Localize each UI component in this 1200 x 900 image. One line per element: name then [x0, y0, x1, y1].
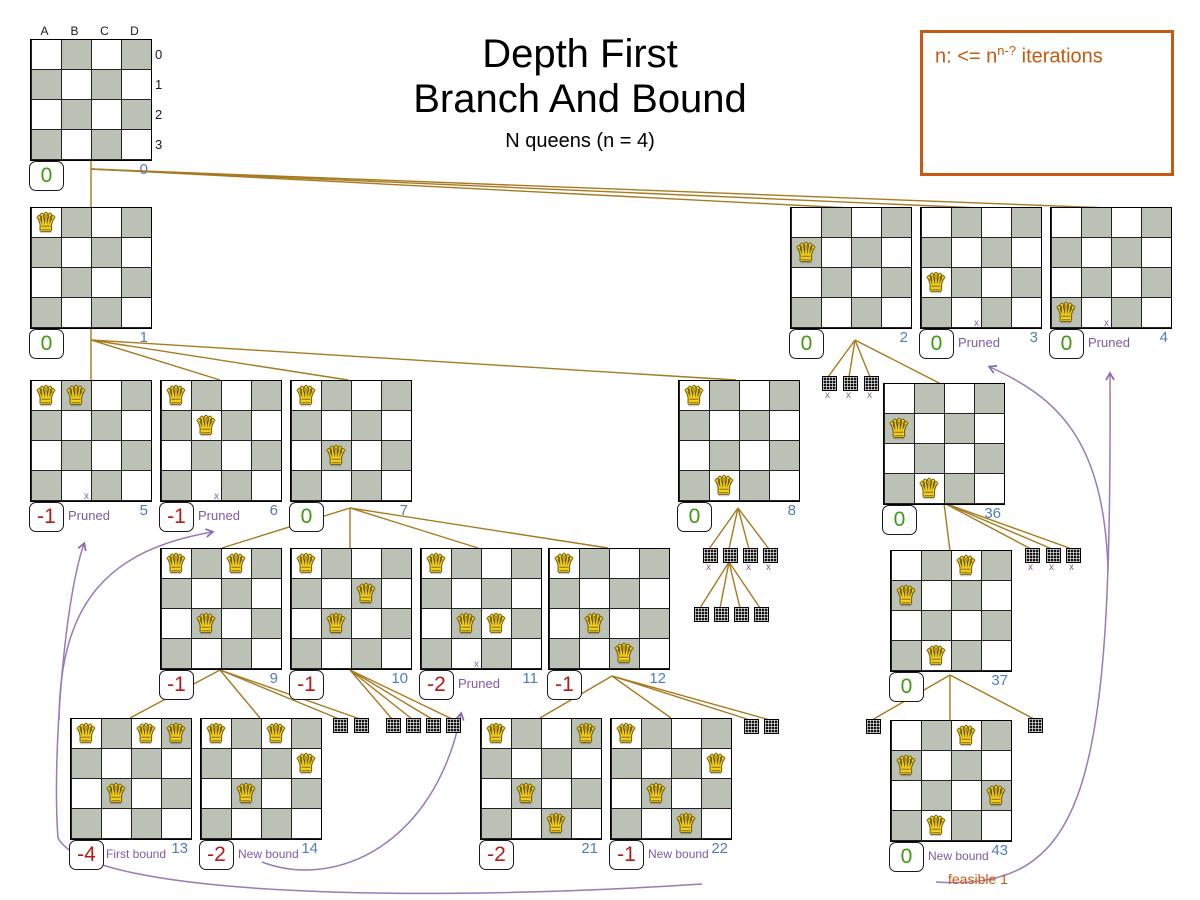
board-cell: [101, 809, 131, 839]
board-cell: [891, 551, 921, 581]
board-cell: [381, 411, 411, 441]
node-number-0: 0: [118, 161, 148, 178]
tree-edge: [612, 676, 750, 720]
queen-icon: ♛: [1051, 298, 1081, 328]
node-board-8: ♛♛: [678, 380, 800, 502]
board-cell: [291, 719, 321, 749]
board-cell: [91, 130, 121, 160]
board-cell: [101, 749, 131, 779]
board-cell: [121, 208, 151, 238]
mini-board: [723, 548, 738, 563]
queen-icon: ♛: [31, 381, 61, 411]
board-cell: [31, 471, 61, 501]
board-cell: [769, 441, 799, 471]
board-cell: [91, 268, 121, 298]
mini-board: [1046, 548, 1061, 563]
queen-icon: ♛: [191, 411, 221, 441]
board-cell: [221, 441, 251, 471]
board-cell: [191, 549, 221, 579]
node-board-7: ♛♛: [290, 380, 412, 502]
page-title-line2: Branch And Bound: [330, 77, 830, 122]
mini-board: [864, 376, 879, 391]
score-badge-22: -1: [609, 840, 644, 870]
mini-board: [734, 607, 749, 622]
row-label-1: 1: [155, 77, 162, 92]
queen-icon: ♛: [351, 579, 381, 609]
queen-icon: ♛: [261, 719, 291, 749]
board-cell: [1051, 238, 1081, 268]
queen-icon: ♛: [914, 474, 944, 504]
board-cell: [549, 579, 579, 609]
board-cell: [951, 811, 981, 841]
board-cell: [884, 384, 914, 414]
board-cell: [921, 581, 951, 611]
board-cell: [481, 639, 511, 669]
queen-icon: ♛: [709, 471, 739, 501]
score-badge-10: -1: [289, 670, 324, 700]
tree-edge: [729, 562, 760, 608]
board-cell: [381, 579, 411, 609]
board-cell: [121, 238, 151, 268]
board-cell: [709, 411, 739, 441]
board-cell: [451, 579, 481, 609]
score-badge-7: 0: [289, 502, 324, 532]
queen-icon: ♛: [951, 721, 981, 751]
board-cell: [251, 549, 281, 579]
pruned-xmark-5: x: [84, 492, 89, 502]
board-cell: [944, 384, 974, 414]
queen-icon: ♛: [191, 609, 221, 639]
board-cell: [421, 579, 451, 609]
queen-icon: ♛: [609, 639, 639, 669]
board-cell: [31, 298, 61, 328]
board-cell: [914, 384, 944, 414]
mini-board: [763, 548, 778, 563]
board-cell: [1051, 208, 1081, 238]
board-cell: [641, 749, 671, 779]
board-cell: [951, 268, 981, 298]
board-cell: [481, 779, 511, 809]
board-cell: [579, 549, 609, 579]
board-cell: [579, 639, 609, 669]
board-cell: [161, 809, 191, 839]
board-cell: [351, 639, 381, 669]
score-badge-21: -2: [479, 840, 514, 870]
board-cell: [769, 471, 799, 501]
board-cell: [981, 811, 1011, 841]
mini-board: [1028, 718, 1043, 733]
board-cell: [884, 444, 914, 474]
board-cell: [981, 208, 1011, 238]
queen-icon: ♛: [891, 581, 921, 611]
board-cell: [891, 721, 921, 751]
board-cell: [91, 298, 121, 328]
node-number-12: 12: [636, 670, 666, 687]
board-cell: [61, 268, 91, 298]
board-cell: [351, 381, 381, 411]
score-badge-43: 0: [889, 842, 924, 872]
score-badge-37: 0: [889, 672, 924, 702]
note-superscript: n-?: [997, 43, 1016, 58]
node-number-6: 6: [248, 502, 278, 519]
queen-icon: ♛: [201, 719, 231, 749]
score-badge-36: 0: [882, 505, 917, 535]
tree-edge: [91, 169, 850, 208]
board-cell: [71, 779, 101, 809]
board-cell: [231, 749, 261, 779]
queen-icon: ♛: [221, 549, 251, 579]
board-cell: [291, 809, 321, 839]
board-cell: [221, 411, 251, 441]
board-cell: [1011, 208, 1041, 238]
pruned-label-4: Pruned: [1088, 335, 1130, 350]
board-cell: [981, 298, 1011, 328]
board-cell: [91, 40, 121, 70]
board-cell: [951, 238, 981, 268]
board-cell: [701, 809, 731, 839]
board-cell: [951, 208, 981, 238]
board-cell: [121, 268, 151, 298]
board-cell: [951, 781, 981, 811]
board-cell: [351, 411, 381, 441]
board-cell: [251, 609, 281, 639]
mini-board-xmark: x: [867, 391, 872, 401]
dfbb-diagram: Depth First Branch And Bound N queens (n…: [0, 0, 1200, 900]
board-cell: [121, 40, 151, 70]
queen-icon: ♛: [421, 549, 451, 579]
score-badge-2: 0: [789, 329, 824, 359]
board-cell: [191, 441, 221, 471]
board-cell: [321, 411, 351, 441]
board-cell: [381, 639, 411, 669]
board-cell: [251, 441, 281, 471]
board-cell: [221, 471, 251, 501]
queen-icon: ♛: [71, 719, 101, 749]
board-cell: [921, 751, 951, 781]
board-cell: [701, 719, 731, 749]
tree-edge: [944, 503, 1072, 549]
board-cell: [121, 130, 151, 160]
board-cell: [541, 749, 571, 779]
mini-board-xmark: x: [825, 391, 830, 401]
board-cell: [61, 208, 91, 238]
board-cell: [679, 411, 709, 441]
board-cell: [579, 579, 609, 609]
prune-arrow-newbound43-to-pruned3: [990, 367, 1108, 570]
board-cell: [121, 70, 151, 100]
board-cell: [31, 100, 61, 130]
board-cell: [381, 441, 411, 471]
board-cell: [739, 381, 769, 411]
score-badge-3: 0: [919, 329, 954, 359]
board-cell: [121, 100, 151, 130]
board-cell: [791, 298, 821, 328]
board-cell: [739, 471, 769, 501]
board-cell: [921, 721, 951, 751]
board-cell: [981, 641, 1011, 671]
queen-icon: ♛: [981, 781, 1011, 811]
new-bound-label-22: New bound: [648, 847, 709, 861]
mini-board-xmark: x: [766, 563, 771, 573]
board-cell: [679, 471, 709, 501]
board-cell: [921, 208, 951, 238]
board-cell: [679, 441, 709, 471]
board-cell: [1141, 268, 1171, 298]
node-board-11: ♛♛♛: [420, 548, 542, 670]
new-bound-label-43: New bound: [928, 849, 989, 863]
queen-icon: ♛: [921, 811, 951, 841]
mini-board: [703, 548, 718, 563]
queen-icon: ♛: [549, 549, 579, 579]
score-badge-5: -1: [29, 502, 64, 532]
score-badge-13: -4: [69, 840, 104, 870]
queen-icon: ♛: [701, 749, 731, 779]
tree-edge: [828, 340, 855, 377]
page-title: Depth First: [330, 32, 830, 77]
board-cell: [31, 441, 61, 471]
mini-board-xmark: x: [746, 563, 751, 573]
iterations-note-box: n: <= nn-? iterations: [920, 30, 1174, 176]
page-subtitle: N queens (n = 4): [330, 130, 830, 153]
node-number-5: 5: [118, 502, 148, 519]
board-cell: [31, 268, 61, 298]
board-cell: [951, 751, 981, 781]
board-cell: [571, 749, 601, 779]
board-cell: [609, 549, 639, 579]
node-board-4: ♛: [1050, 207, 1172, 329]
pruned-xmark-11: x: [474, 660, 479, 670]
board-cell: [769, 411, 799, 441]
board-cell: [71, 809, 101, 839]
board-cell: [1111, 298, 1141, 328]
board-cell: [671, 719, 701, 749]
board-cell: [161, 441, 191, 471]
board-cell: [291, 579, 321, 609]
board-cell: [549, 639, 579, 669]
node-board-21: ♛♛♛♛: [480, 718, 602, 840]
board-cell: [131, 749, 161, 779]
tree-edge: [849, 340, 855, 377]
board-cell: [61, 411, 91, 441]
board-cell: [921, 551, 951, 581]
board-cell: [161, 749, 191, 779]
board-cell: [914, 414, 944, 444]
board-cell: [291, 471, 321, 501]
board-cell: [291, 609, 321, 639]
pruned-xmark-3: x: [974, 319, 979, 329]
board-cell: [974, 474, 1004, 504]
board-cell: [91, 208, 121, 238]
board-cell: [61, 441, 91, 471]
board-cell: [451, 549, 481, 579]
queen-icon: ♛: [231, 779, 261, 809]
board-cell: [61, 100, 91, 130]
tree-edge: [855, 340, 870, 377]
board-cell: [91, 238, 121, 268]
queen-icon: ♛: [161, 549, 191, 579]
board-cell: [161, 579, 191, 609]
board-cell: [161, 639, 191, 669]
node-number-36: 36: [971, 505, 1001, 522]
board-cell: [981, 751, 1011, 781]
board-cell: [321, 381, 351, 411]
board-cell: [321, 639, 351, 669]
mini-board: [1066, 548, 1081, 563]
board-cell: [821, 208, 851, 238]
board-cell: [511, 749, 541, 779]
column-label-D: D: [120, 24, 150, 38]
mini-board: [754, 607, 769, 622]
board-cell: [821, 268, 851, 298]
board-cell: [981, 581, 1011, 611]
board-cell: [921, 238, 951, 268]
queen-icon: ♛: [481, 609, 511, 639]
board-cell: [881, 298, 911, 328]
queen-icon: ♛: [511, 779, 541, 809]
board-cell: [1081, 238, 1111, 268]
note-prefix: n: <= n: [935, 46, 997, 68]
node-number-7: 7: [378, 502, 408, 519]
board-cell: [951, 611, 981, 641]
board-cell: [191, 639, 221, 669]
score-badge-1: 0: [29, 329, 64, 359]
board-cell: [1011, 238, 1041, 268]
board-cell: [291, 779, 321, 809]
board-cell: [701, 779, 731, 809]
board-cell: [1111, 268, 1141, 298]
board-cell: [131, 809, 161, 839]
board-cell: [221, 381, 251, 411]
queen-icon: ♛: [131, 719, 161, 749]
board-cell: [709, 381, 739, 411]
board-cell: [91, 381, 121, 411]
board-cell: [609, 609, 639, 639]
board-cell: [639, 549, 669, 579]
node-board-5: ♛♛: [30, 380, 152, 502]
board-cell: [851, 268, 881, 298]
board-cell: [1111, 208, 1141, 238]
board-cell: [944, 444, 974, 474]
node-number-21: 21: [568, 840, 598, 857]
board-cell: [31, 411, 61, 441]
board-cell: [891, 781, 921, 811]
queen-icon: ♛: [291, 381, 321, 411]
node-number-2: 2: [878, 329, 908, 346]
mini-board: [843, 376, 858, 391]
mini-board: [822, 376, 837, 391]
board-cell: [571, 779, 601, 809]
board-cell: [1111, 238, 1141, 268]
board-cell: [951, 641, 981, 671]
board-cell: [91, 100, 121, 130]
board-cell: [61, 238, 91, 268]
board-cell: [381, 549, 411, 579]
board-cell: [351, 609, 381, 639]
pruned-label-11: Pruned: [458, 676, 500, 691]
board-cell: [1081, 268, 1111, 298]
board-cell: [121, 441, 151, 471]
node-number-3: 3: [1008, 329, 1038, 346]
board-cell: [981, 238, 1011, 268]
column-label-B: B: [60, 24, 90, 38]
board-cell: [61, 298, 91, 328]
mini-board: [714, 607, 729, 622]
iterations-note-text: n: <= nn-? iterations: [923, 33, 1171, 79]
board-cell: [61, 70, 91, 100]
board-cell: [641, 809, 671, 839]
board-cell: [321, 549, 351, 579]
board-cell: [61, 40, 91, 70]
score-badge-9: -1: [159, 670, 194, 700]
node-board-43: ♛♛♛♛: [890, 720, 1012, 842]
board-cell: [541, 719, 571, 749]
node-number-11: 11: [508, 670, 538, 687]
queen-icon: ♛: [571, 719, 601, 749]
row-label-3: 3: [155, 137, 162, 152]
board-cell: [511, 549, 541, 579]
board-cell: [1081, 208, 1111, 238]
board-cell: [481, 579, 511, 609]
node-number-1: 1: [118, 329, 148, 346]
board-cell: [641, 719, 671, 749]
board-cell: [291, 441, 321, 471]
board-cell: [611, 809, 641, 839]
node-board-36: ♛♛: [883, 383, 1005, 505]
board-cell: [1141, 298, 1171, 328]
node-board-2: ♛: [790, 207, 912, 329]
mini-board: [406, 718, 421, 733]
board-cell: [921, 298, 951, 328]
score-badge-8: 0: [677, 502, 712, 532]
queen-icon: ♛: [291, 749, 321, 779]
board-cell: [251, 381, 281, 411]
feasible-label: feasible 1: [948, 871, 1008, 887]
board-cell: [891, 611, 921, 641]
board-cell: [351, 549, 381, 579]
board-cell: [381, 609, 411, 639]
board-cell: [851, 298, 881, 328]
board-cell: [769, 381, 799, 411]
board-cell: [421, 639, 451, 669]
pruned-label-3: Pruned: [958, 335, 1000, 350]
queen-icon: ♛: [951, 551, 981, 581]
board-cell: [121, 471, 151, 501]
board-cell: [511, 809, 541, 839]
tree-edge: [729, 562, 740, 608]
board-cell: [851, 238, 881, 268]
board-cell: [914, 444, 944, 474]
board-cell: [1141, 238, 1171, 268]
board-cell: [101, 719, 131, 749]
board-cell: [91, 411, 121, 441]
mini-board-xmark: x: [1069, 563, 1074, 573]
board-cell: [944, 474, 974, 504]
board-cell: [511, 639, 541, 669]
mini-board-xmark: x: [1028, 563, 1033, 573]
queen-icon: ♛: [641, 779, 671, 809]
board-cell: [1141, 208, 1171, 238]
board-cell: [891, 811, 921, 841]
board-cell: [321, 471, 351, 501]
board-cell: [381, 471, 411, 501]
board-cell: [791, 268, 821, 298]
queen-icon: ♛: [321, 609, 351, 639]
queen-icon: ♛: [921, 268, 951, 298]
board-cell: [791, 208, 821, 238]
mini-board: [446, 718, 461, 733]
board-cell: [944, 414, 974, 444]
mini-board-xmark: x: [1049, 563, 1054, 573]
